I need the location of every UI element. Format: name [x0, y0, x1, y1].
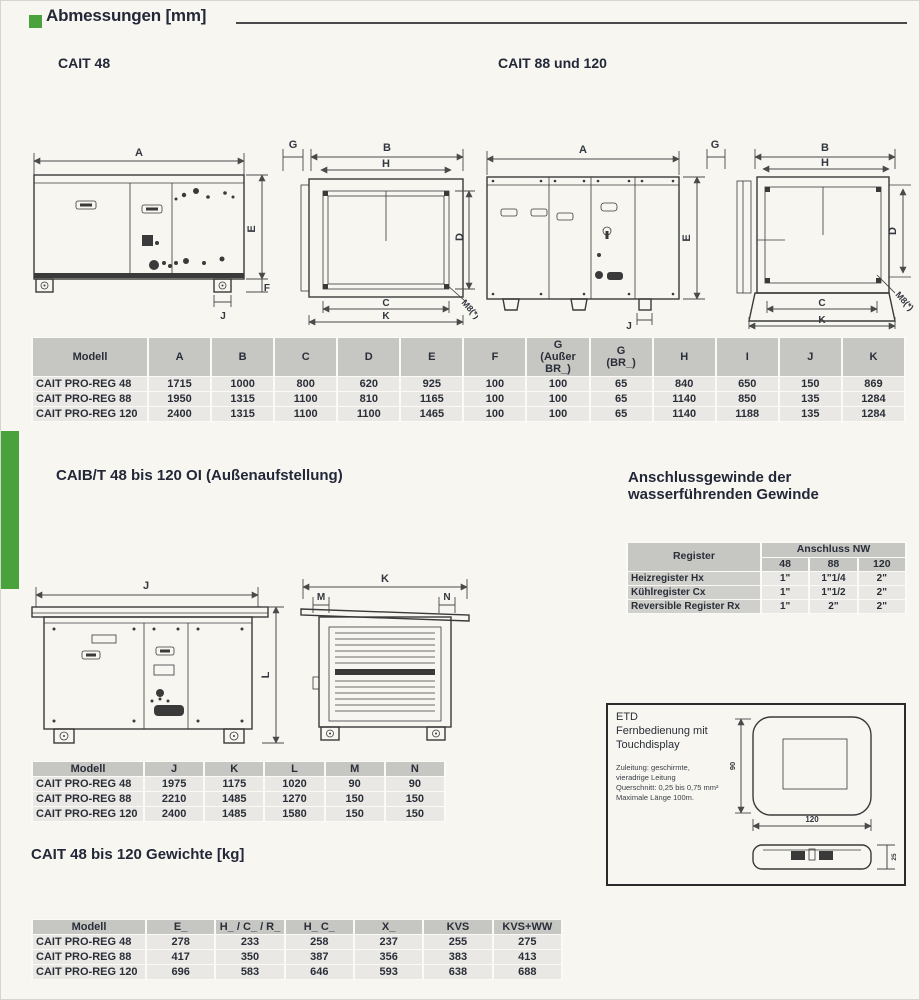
dim-label-c: C: [382, 298, 389, 309]
table-cell: 135: [780, 407, 841, 421]
dim-label-g: G: [711, 139, 720, 151]
dim-label-l: L: [260, 671, 272, 678]
column-header: N: [386, 762, 444, 776]
table-cell: 593: [355, 965, 422, 979]
table-cell: 1000: [212, 377, 273, 391]
table-cell: 1100: [275, 392, 336, 406]
table-cell: 1175: [205, 777, 263, 791]
column-header: J: [780, 338, 841, 376]
dim-label-c: C: [818, 298, 825, 309]
table-cell: 150: [386, 792, 444, 806]
table-cell: 1715: [149, 377, 210, 391]
table-header-row: Register Anschluss NW: [628, 543, 905, 557]
table-cell: CAIT PRO-REG 48: [33, 935, 145, 949]
dim-label-k: K: [381, 573, 389, 585]
column-header: Modell: [33, 762, 143, 776]
dim-label-g: G: [289, 139, 298, 151]
table-cell: 2": [859, 572, 905, 585]
table-cell: 278: [147, 935, 214, 949]
dim-label-k: K: [818, 315, 826, 326]
cait88-side-drawing: A J E: [479, 137, 709, 333]
column-header: Anschluss NW: [762, 543, 905, 557]
table-cell: CAIT PRO-REG 88: [33, 392, 147, 406]
cait48-side-drawing: A E F J: [26, 139, 271, 324]
column-header: K: [205, 762, 263, 776]
table-cell: 255: [424, 935, 491, 949]
cait48-front-drawing: G B H D C K M8(*): [273, 137, 478, 327]
table-cell: 1315: [212, 407, 273, 421]
table-cell: 65: [591, 392, 652, 406]
etd-remote-drawing: 90 120 25: [727, 709, 902, 881]
table-cell: 1270: [265, 792, 323, 806]
table-cell: 2": [810, 600, 856, 613]
dim-label-depth: 25: [891, 853, 898, 861]
table-cell: 1485: [205, 792, 263, 806]
subtitle-weights: CAIT 48 bis 120 Gewichte [kg]: [31, 846, 244, 863]
dim-label-j: J: [220, 311, 226, 322]
table-cell: 638: [424, 965, 491, 979]
etd-note: Zuleitung: geschirmte, vieradrige Leitun…: [616, 763, 734, 804]
dim-label-m8: M8(*): [460, 298, 478, 321]
column-header: M: [326, 762, 384, 776]
table-cell: 275: [494, 935, 561, 949]
page-title: Abmessungen [mm]: [46, 6, 206, 26]
caibt-side-drawing: J L: [26, 577, 291, 755]
column-header: L: [265, 762, 323, 776]
outdoor-dimensions-table: ModellJKLMN CAIT PRO-REG 481975117510209…: [31, 761, 446, 822]
etd-line2: Touchdisplay: [616, 739, 680, 751]
column-header: J: [145, 762, 203, 776]
table-cell: 150: [386, 807, 444, 821]
table-cell: 387: [286, 950, 353, 964]
table-cell: 696: [147, 965, 214, 979]
table-cell: 2400: [145, 807, 203, 821]
table-cell: 237: [355, 935, 422, 949]
table-cell: 1950: [149, 392, 210, 406]
table-header-row: ModellE_H_ / C_ / R_H_ C_X_KVSKVS+WW: [33, 920, 561, 934]
column-header: H_ / C_ / R_: [216, 920, 283, 934]
table-cell: CAIT PRO-REG 88: [33, 950, 145, 964]
table-cell: 65: [591, 377, 652, 391]
table-cell: CAIT PRO-REG 120: [33, 807, 143, 821]
column-header: 120: [859, 558, 905, 572]
table-cell: 1": [762, 586, 808, 599]
table-cell: 1188: [717, 407, 778, 421]
column-header: B: [212, 338, 273, 376]
table-cell: 1100: [275, 407, 336, 421]
title-rule: [236, 22, 907, 24]
section-bullet-square: [29, 15, 42, 28]
table-cell: Heizregister Hx: [628, 572, 760, 585]
table-cell: 1580: [265, 807, 323, 821]
subtitle-thread: Anschlussgewinde der wasserführenden Gew…: [628, 469, 819, 503]
table-header-row: ModellJKLMN: [33, 762, 444, 776]
table-cell: 150: [326, 792, 384, 806]
dim-label-e: E: [681, 234, 693, 241]
dim-label-a: A: [135, 147, 143, 159]
table-cell: 840: [654, 377, 715, 391]
table-cell: 1"1/4: [810, 572, 856, 585]
dimensions-table: ModellABCDEFG (Außer BR_)G (BR_)HIJK CAI…: [31, 337, 906, 422]
table-cell: 90: [386, 777, 444, 791]
caibt-front-drawing: K M N: [291, 573, 481, 754]
table-row: CAIT PRO-REG 88417350387356383413: [33, 950, 561, 964]
table-cell: 869: [843, 377, 904, 391]
table-cell: 100: [527, 377, 588, 391]
table-cell: 100: [464, 377, 525, 391]
table-cell: 1485: [205, 807, 263, 821]
column-header: 48: [762, 558, 808, 572]
table-cell: 1": [762, 600, 808, 613]
dim-label-height: 90: [728, 762, 737, 770]
table-header-row: ModellABCDEFG (Außer BR_)G (BR_)HIJK: [33, 338, 904, 376]
etd-line1: Fernbedienung mit: [616, 725, 708, 737]
table-cell: 2": [859, 600, 905, 613]
table-cell: Kühlregister Cx: [628, 586, 760, 599]
column-header: Register: [628, 543, 760, 571]
dim-label-b: B: [821, 142, 829, 154]
table-cell: 1"1/2: [810, 586, 856, 599]
table-cell: 100: [527, 407, 588, 421]
table-cell: 356: [355, 950, 422, 964]
table-row: CAIT PRO-REG 120240013151100110014651001…: [33, 407, 904, 421]
table-cell: 1100: [338, 407, 399, 421]
dim-label-h: H: [382, 158, 390, 170]
column-header: K: [843, 338, 904, 376]
table-cell: 150: [780, 377, 841, 391]
table-cell: 2": [859, 586, 905, 599]
dim-label-d: D: [887, 227, 899, 235]
table-cell: 800: [275, 377, 336, 391]
table-row: Heizregister Hx1"1"1/42": [628, 572, 905, 585]
table-cell: 620: [338, 377, 399, 391]
dim-label-m8: M8(*): [894, 290, 914, 313]
column-header: KVS: [424, 920, 491, 934]
table-cell: 100: [527, 392, 588, 406]
table-cell: 1020: [265, 777, 323, 791]
table-cell: 1315: [212, 392, 273, 406]
dim-label-k: K: [382, 311, 390, 322]
table-row: CAIT PRO-REG 88221014851270150150: [33, 792, 444, 806]
subtitle-caibt: CAIB/T 48 bis 120 OI (Außenaufstellung): [56, 467, 343, 484]
table-cell: 413: [494, 950, 561, 964]
cait88-front-drawing: G B H D C K M8(*): [699, 135, 914, 333]
table-cell: 2400: [149, 407, 210, 421]
table-cell: 350: [216, 950, 283, 964]
subtitle-cait88: CAIT 88 und 120: [498, 55, 607, 71]
table-row: CAIT PRO-REG 120696583646593638688: [33, 965, 561, 979]
table-cell: 1165: [401, 392, 462, 406]
table-cell: 650: [717, 377, 778, 391]
dim-label-h: H: [821, 157, 829, 169]
column-header: G (Außer BR_): [527, 338, 588, 376]
column-header: 88: [810, 558, 856, 572]
table-cell: Reversible Register Rx: [628, 600, 760, 613]
table-cell: 1465: [401, 407, 462, 421]
table-cell: 2210: [145, 792, 203, 806]
table-cell: 417: [147, 950, 214, 964]
table-cell: CAIT PRO-REG 88: [33, 792, 143, 806]
etd-description: ETD Fernbedienung mit Touchdisplay: [616, 711, 736, 752]
table-cell: 100: [464, 407, 525, 421]
subtitle-cait48: CAIT 48: [58, 55, 110, 71]
column-header: H: [654, 338, 715, 376]
dim-label-f: F: [264, 283, 270, 294]
table-cell: 925: [401, 377, 462, 391]
table-cell: CAIT PRO-REG 48: [33, 777, 143, 791]
table-row: CAIT PRO-REG 120240014851580150150: [33, 807, 444, 821]
table-cell: 1140: [654, 392, 715, 406]
dim-label-n: N: [443, 592, 450, 603]
table-cell: 1": [762, 572, 808, 585]
table-cell: 688: [494, 965, 561, 979]
datasheet-page: Abmessungen [mm] CAIT 48 CAIT 88 und 120…: [0, 0, 920, 1000]
table-row: CAIT PRO-REG 481975117510209090: [33, 777, 444, 791]
table-cell: 135: [780, 392, 841, 406]
table-cell: CAIT PRO-REG 120: [33, 965, 145, 979]
dim-label-e: E: [246, 225, 258, 232]
column-header: F: [464, 338, 525, 376]
table-cell: 1140: [654, 407, 715, 421]
column-header: I: [717, 338, 778, 376]
table-row: Kühlregister Cx1"1"1/22": [628, 586, 905, 599]
table-cell: 233: [216, 935, 283, 949]
etd-title: ETD: [616, 711, 638, 723]
weights-table: ModellE_H_ / C_ / R_H_ C_X_KVSKVS+WW CAI…: [31, 919, 563, 980]
table-cell: CAIT PRO-REG 48: [33, 377, 147, 391]
thread-table: Register Anschluss NW 4888120 Heizregist…: [626, 542, 907, 614]
green-accent-bar: [1, 431, 19, 589]
column-header: KVS+WW: [494, 920, 561, 934]
table-cell: 258: [286, 935, 353, 949]
table-row: CAIT PRO-REG 48278233258237255275: [33, 935, 561, 949]
table-row: CAIT PRO-REG 481715100080062092510010065…: [33, 377, 904, 391]
column-header: X_: [355, 920, 422, 934]
table-cell: 850: [717, 392, 778, 406]
dim-label-a: A: [579, 144, 587, 156]
column-header: G (BR_): [591, 338, 652, 376]
column-header: C: [275, 338, 336, 376]
table-row: CAIT PRO-REG 881950131511008101165100100…: [33, 392, 904, 406]
dim-label-m: M: [317, 592, 325, 603]
column-header: Modell: [33, 920, 145, 934]
dim-label-j: J: [626, 321, 632, 332]
dim-label-width: 120: [805, 815, 819, 824]
table-cell: 646: [286, 965, 353, 979]
table-cell: 65: [591, 407, 652, 421]
table-cell: 1284: [843, 392, 904, 406]
dim-label-b: B: [383, 142, 391, 154]
table-cell: 90: [326, 777, 384, 791]
table-cell: 100: [464, 392, 525, 406]
column-header: H_ C_: [286, 920, 353, 934]
dim-label-d: D: [454, 233, 466, 241]
column-header: Modell: [33, 338, 147, 376]
table-row: Reversible Register Rx1"2"2": [628, 600, 905, 613]
dim-label-j: J: [143, 580, 149, 592]
column-header: A: [149, 338, 210, 376]
table-cell: 150: [326, 807, 384, 821]
table-cell: 810: [338, 392, 399, 406]
table-cell: CAIT PRO-REG 120: [33, 407, 147, 421]
table-cell: 1975: [145, 777, 203, 791]
column-header: E_: [147, 920, 214, 934]
column-header: E: [401, 338, 462, 376]
etd-remote-panel: ETD Fernbedienung mit Touchdisplay Zulei…: [606, 703, 906, 886]
table-cell: 1284: [843, 407, 904, 421]
table-cell: 583: [216, 965, 283, 979]
column-header: D: [338, 338, 399, 376]
table-cell: 383: [424, 950, 491, 964]
